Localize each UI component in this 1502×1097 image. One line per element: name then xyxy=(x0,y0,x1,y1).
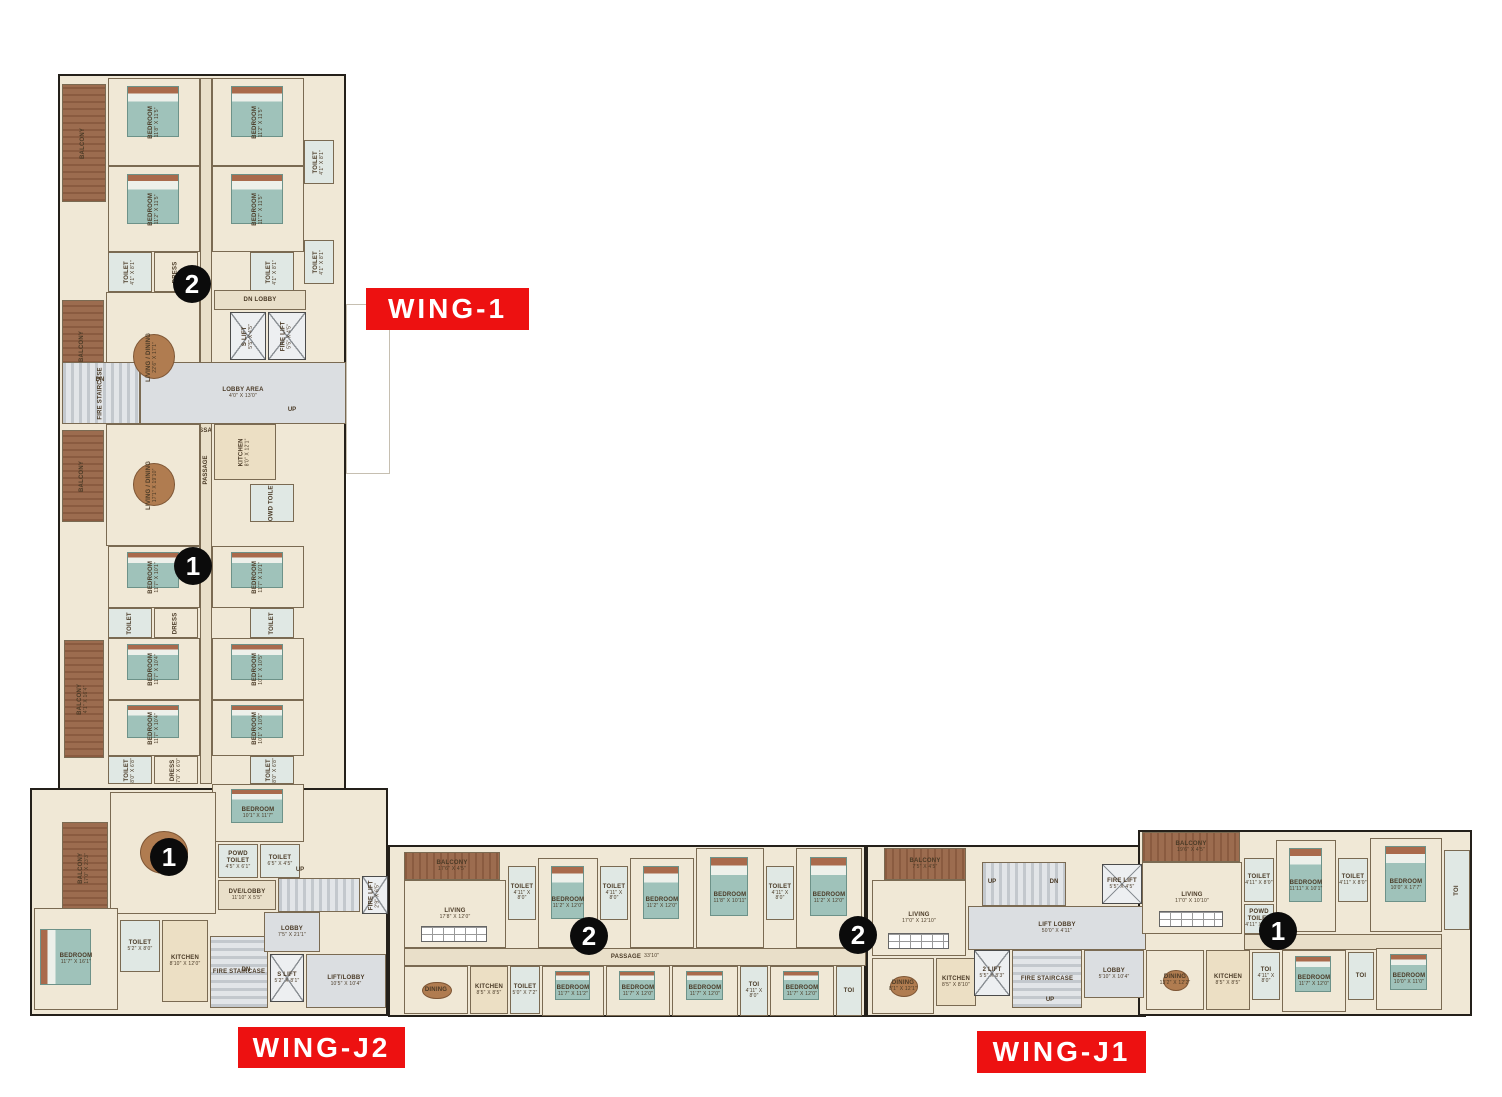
room-bedroom: BEDROOM11'7" X 11'2" xyxy=(542,966,604,1016)
room-label: TOI4'11" X 8'0" xyxy=(1253,967,1279,985)
unit-marker-2: 2 xyxy=(839,916,877,954)
room-label: BALCONY7'5" X 4'5" xyxy=(909,858,940,871)
room-label: KITCHEN8'5" X 8'5" xyxy=(1214,974,1242,987)
room-label: POWD TOILET4'5" X 6'1" xyxy=(219,851,257,871)
room-passage: PASSAGE xyxy=(200,78,212,784)
room-label: DVE/LOBBY11'10" X 5'5" xyxy=(229,889,266,902)
room-label: BEDROOM11'8" X 10'11" xyxy=(713,892,746,905)
room-powd-toilet: POWD TOILET4'5" X 6'1" xyxy=(218,844,258,878)
room-toilet: TOILET5'2" X 8'0" xyxy=(120,920,160,972)
room-label: FIRE LIFT2'9" X 6'5" xyxy=(369,880,382,910)
room-bedroom: BEDROOM11'7" X 11'5" xyxy=(212,166,304,252)
room-label: TOILET5'0" X 7'2" xyxy=(513,984,538,997)
room-toilet: TOILET4'1" X 8'1" xyxy=(304,240,334,284)
room-kitchen: KITCHEN8'5" X 8'10" xyxy=(936,958,976,1006)
room-label: LIVING17'0" X 12'10" xyxy=(902,912,936,925)
room-label: BEDROOM10'1" X 10'5" xyxy=(252,712,265,745)
room-label: TOILET8'0" X 6'8" xyxy=(266,758,279,783)
room-bedroom: BEDROOM10'1" X 10'5" xyxy=(212,638,304,700)
room-fire-lift: FIRE LIFT5'5" X 4'5" xyxy=(1102,864,1142,904)
wing-label-wing-j1: WING-J1 xyxy=(977,1031,1146,1073)
annotation-text: UP xyxy=(988,879,996,885)
room-toilet: TOILET4'11" X 8'0" xyxy=(766,866,794,920)
floor-plan-canvas: WING-1 WING-J2 WING-J1 PASSAGEBALCONYBED… xyxy=(0,0,1502,1097)
bed-icon xyxy=(810,857,847,916)
room-label: TOILET6'5" X 4'5" xyxy=(268,855,293,868)
annotation-text: PASSAGE xyxy=(203,456,209,485)
room-bedroom: BEDROOM10'1" X 11'7" xyxy=(212,784,304,842)
room-living: LIVING17'0" X 10'10" xyxy=(1142,862,1242,934)
room-dve-lobby: DVE/LOBBY11'10" X 5'5" xyxy=(218,880,276,910)
room-label: BALCONY19'6" X 4'5" xyxy=(1175,841,1206,854)
room-label: LIVING / DINING17'1" X 19'10" xyxy=(147,460,160,509)
room-label: 2 LIFT5'5" X 8'3" xyxy=(980,967,1005,980)
room-label: BEDROOM11'7" X 12'0" xyxy=(689,985,722,998)
room-bedroom: BEDROOM11'2" X 12'0" xyxy=(630,858,694,948)
room-dining: DINING13'2" X 12'2" xyxy=(1146,950,1204,1010)
room-label: FIRE LIFT5'5" X 4'5" xyxy=(1107,878,1137,891)
room-toi: TOI xyxy=(836,966,862,1016)
room-toi: TOI xyxy=(1444,850,1470,930)
room-bedroom: BEDROOM11'7" X 12'0" xyxy=(672,966,738,1016)
room-passage: PASSAGE33'10" xyxy=(404,948,866,966)
room-bedroom: BEDROOM11'8" X 11'5" xyxy=(108,78,200,166)
room-label: PASSAGE33'10" xyxy=(611,954,659,961)
room-label: TOILET4'11" X 8'0" xyxy=(1339,874,1367,887)
unit-marker-1: 1 xyxy=(1259,912,1297,950)
room-bedroom: BEDROOM10'1" X 10'5" xyxy=(212,700,304,756)
room-dining: DINING8'1" X 12'1" xyxy=(872,958,934,1014)
room-toi: TOI4'11" X 8'0" xyxy=(1252,952,1280,1000)
room-label: TOILET5'2" X 8'0" xyxy=(128,940,153,953)
room-label: BEDROOM11'7" X 12'0" xyxy=(622,985,655,998)
room-label: LOBBY5'10" X 10'4" xyxy=(1099,968,1130,981)
room-powd-toilet: POWD TOILET xyxy=(250,484,294,522)
room-balcony: BALCONY17'6" X 4'5" xyxy=(404,852,500,880)
room-label: BEDROOM11'7" X 10'1" xyxy=(252,561,265,594)
room-label: TOILET4'1" X 8'1" xyxy=(124,260,137,285)
room-label: TOILET4'11" X 8'0" xyxy=(509,884,535,902)
room-balcony: BALCONY xyxy=(62,430,104,522)
room-label: BEDROOM11'2" X 11'5" xyxy=(148,193,161,226)
wing-label-wing-j2: WING-J2 xyxy=(238,1027,405,1068)
unit-marker-1: 1 xyxy=(150,838,188,876)
unit-number-table xyxy=(421,926,487,942)
room-label: LIVING17'0" X 10'10" xyxy=(1175,892,1209,905)
room-kitchen: KITCHEN8'0" X 12'1" xyxy=(214,424,276,480)
room-label: BALCONY xyxy=(80,460,87,491)
room-label: DRESS7'0" X 6'0" xyxy=(170,758,183,783)
room-label: BEDROOM11'7" X 11'5" xyxy=(252,193,265,226)
room-label: BALCONY17'6" X 4'5" xyxy=(436,860,467,873)
room-label: FIRE STAIRCASE xyxy=(1021,976,1073,983)
room-room xyxy=(278,878,360,912)
room-bedroom: BEDROOM11'7" X 10'4" xyxy=(108,638,200,700)
room-kitchen: KITCHEN8'10" X 12'0" xyxy=(162,920,208,1002)
room-label: DN LOBBY xyxy=(244,297,277,304)
annotation-text: DN xyxy=(96,377,105,383)
room-label: BEDROOM11'2" X 12'0" xyxy=(552,897,585,910)
room-balcony: BALCONY19'6" X 4'5" xyxy=(1142,832,1240,862)
room-bedroom: BEDROOM10'0" X 11'0" xyxy=(1376,948,1442,1010)
room-label: LIVING17'8" X 12'0" xyxy=(440,908,471,921)
room-label: LIVING / DINING22'6" X 17'1" xyxy=(147,332,160,381)
room-dn-lobby: DN LOBBY xyxy=(214,290,306,310)
room-label: TOILET xyxy=(127,612,134,634)
room-lobby-area: LOBBY AREA4'0" X 13'0" xyxy=(140,362,346,424)
room-label: BALCONY4'1" X 16'4" xyxy=(78,683,91,714)
annotation-text: UP xyxy=(288,407,296,413)
room-fire-staircase: FIRE STAIRCASE xyxy=(62,362,140,424)
room-living: LIVING17'0" X 12'10" xyxy=(872,880,966,956)
room-bedroom: BEDROOM11'7" X 16'1" xyxy=(34,908,118,1010)
room-balcony: BALCONY4'1" X 16'4" xyxy=(64,640,104,758)
room-label: TOILET4'1" X 8'1" xyxy=(266,260,279,285)
room-dining: DINING xyxy=(404,966,468,1014)
wing-label-wing-1: WING-1 xyxy=(366,288,529,330)
room-label: BALCONY17'0" X 23'3" xyxy=(79,852,92,883)
room-label: BEDROOM11'8" X 11'5" xyxy=(148,106,161,139)
room-label: KITCHEN8'5" X 8'5" xyxy=(475,984,503,997)
room-label: KITCHEN8'5" X 8'10" xyxy=(942,976,970,989)
bed-icon xyxy=(1385,846,1426,901)
room-label: BEDROOM10'0" X 11'0" xyxy=(1393,973,1426,986)
room-living-dining: LIVING / DINING17'1" X 19'10" xyxy=(106,424,200,546)
room-toilet: TOILET8'0" X 6'8" xyxy=(250,756,294,784)
room-bedroom: BEDROOM11'8" X 10'11" xyxy=(696,848,764,948)
room-label: DINING8'1" X 12'1" xyxy=(889,980,917,993)
room-label: BEDROOM10'1" X 10'5" xyxy=(252,653,265,686)
room-balcony: BALCONY xyxy=(62,84,106,202)
room-label: FIRE STAIRCASE xyxy=(213,969,265,976)
room-s-lift: S LIFT5'2" X 8'1" xyxy=(270,954,304,1002)
annotation-text: UP xyxy=(1046,997,1054,1003)
room-label: FIRE STAIRCASE xyxy=(98,367,105,419)
room-label: BEDROOM11'2" X 12'0" xyxy=(646,897,679,910)
room-toi: TOI xyxy=(1348,952,1374,1000)
room-label: TOILET8'0" X 6'8" xyxy=(124,758,137,783)
room-label: TOI4'11" X 8'0" xyxy=(741,982,767,1000)
room-kitchen: KITCHEN8'5" X 8'5" xyxy=(1206,950,1250,1010)
room-label: BEDROOM11'7" X 12'0" xyxy=(786,985,819,998)
room-label: FIRE LIFT5'5" X 4'5" xyxy=(281,321,294,351)
room-fire-staircase: FIRE STAIRCASE xyxy=(210,936,268,1008)
room-toilet: TOILET5'0" X 7'2" xyxy=(510,966,540,1014)
room-label: TOILET4'1" X 8'1" xyxy=(313,250,326,275)
annotation-text: DN xyxy=(242,967,251,973)
room-label: DRESS xyxy=(173,612,180,634)
room-toilet: TOILET xyxy=(108,608,152,638)
room-toilet: TOILET4'11" X 8'0" xyxy=(1244,858,1274,902)
room-label: TOI xyxy=(1356,973,1367,980)
room-toilet: TOILET4'11" X 8'0" xyxy=(508,866,536,920)
room-label: BEDROOM11'7" X 12'0" xyxy=(1298,975,1331,988)
room-label: BEDROOM11'7" X 10'4" xyxy=(148,712,161,745)
room-label: BEDROOM11'2" X 11'5" xyxy=(252,106,265,139)
room-label: DINING13'2" X 12'2" xyxy=(1160,974,1191,987)
room-balcony: BALCONY17'0" X 23'3" xyxy=(62,822,108,914)
room-label: BEDROOM11'7" X 10'4" xyxy=(148,653,161,686)
room-toilet: TOILET4'11" X 8'0" xyxy=(1338,858,1368,902)
room-label: TOILET4'11" X 8'0" xyxy=(1245,874,1273,887)
room-lobby: LOBBY7'5" X 21'1" xyxy=(264,912,320,952)
room-label: LIFT/LOBBY10'5" X 10'4" xyxy=(327,975,364,988)
room-bedroom: BEDROOM11'7" X 12'0" xyxy=(1282,950,1346,1012)
room-lobby: LOBBY5'10" X 10'4" xyxy=(1084,950,1144,998)
room-label: TOILET4'11" X 8'0" xyxy=(767,884,793,902)
room-bedroom: BEDROOM11'2" X 11'5" xyxy=(108,166,200,252)
room-label: TOILET xyxy=(269,612,276,634)
unit-number-table xyxy=(888,933,949,949)
room-bedroom: BEDROOM11'7" X 12'0" xyxy=(770,966,834,1016)
annotation-text: DN xyxy=(1050,879,1059,885)
room-label: TOILET4'1" X 8'1" xyxy=(313,150,326,175)
room-toi: TOI4'11" X 8'0" xyxy=(740,966,768,1016)
room-toilet: TOILET xyxy=(250,608,294,638)
room-dress: DRESS7'0" X 6'0" xyxy=(154,756,198,784)
room-label: POWD TOILET xyxy=(269,484,276,522)
room-label: BEDROOM10'0" X 17'7" xyxy=(1390,879,1423,892)
room-s-lift: S LIFT5'5" X 4'5" xyxy=(230,312,266,360)
room-bedroom: BEDROOM11'7" X 12'0" xyxy=(606,966,670,1016)
unit-marker-2: 2 xyxy=(173,265,211,303)
room-label: S LIFT5'5" X 4'5" xyxy=(242,324,255,349)
unit-marker-1: 1 xyxy=(174,547,212,585)
bed-icon xyxy=(643,866,679,919)
room-label: BEDROOM11'7" X 16'1" xyxy=(60,953,93,966)
room-label: BEDROOM11'7" X 11'2" xyxy=(557,985,590,998)
room-label: LOBBY AREA4'0" X 13'0" xyxy=(222,387,263,400)
room-label: S LIFT5'2" X 8'1" xyxy=(275,972,300,985)
room-label: DINING xyxy=(425,987,447,994)
room-label: KITCHEN8'0" X 12'1" xyxy=(239,438,252,466)
room-bedroom: BEDROOM10'0" X 17'7" xyxy=(1370,838,1442,932)
room-kitchen: KITCHEN8'5" X 8'5" xyxy=(470,966,508,1014)
room-label: LOBBY7'5" X 21'1" xyxy=(278,926,306,939)
annotation-text: UP xyxy=(296,867,304,873)
room-bedroom: BEDROOM11'7" X 10'1" xyxy=(212,546,304,608)
room-label: BEDROOM11'2" X 12'0" xyxy=(813,892,846,905)
room-toilet: TOILET4'1" X 8'1" xyxy=(108,252,152,292)
room-label: TOI xyxy=(844,988,855,995)
room-label: TOI xyxy=(1454,885,1461,896)
unit-number-table xyxy=(1159,911,1224,927)
room-label: BALCONY xyxy=(81,127,88,158)
unit-marker-2: 2 xyxy=(570,917,608,955)
room-living: LIVING17'8" X 12'0" xyxy=(404,880,506,948)
room-2-lift: 2 LIFT5'5" X 8'3" xyxy=(974,950,1010,996)
room-toilet: TOILET4'1" X 8'1" xyxy=(304,140,334,184)
room-toilet: TOILET4'1" X 8'1" xyxy=(250,252,294,292)
room-label: BEDROOM11'7" X 10'1" xyxy=(148,561,161,594)
room-label: BEDROOM11'11" X 10'1" xyxy=(1289,880,1322,893)
room-toilet: TOILET4'11" X 8'0" xyxy=(600,866,628,920)
room-label: PASSAGE xyxy=(200,428,212,435)
room-label: LIFT LOBBY50'0" X 4'11" xyxy=(1038,922,1075,935)
room-toilet: TOILET6'5" X 4'5" xyxy=(260,844,300,878)
room-label: TOILET4'11" X 8'0" xyxy=(601,884,627,902)
room-lift-lobby: LIFT LOBBY50'0" X 4'11" xyxy=(968,906,1146,950)
bed-icon xyxy=(1289,848,1323,902)
room-bedroom: BEDROOM11'2" X 11'5" xyxy=(212,78,304,166)
room-balcony: BALCONY7'5" X 4'5" xyxy=(884,848,966,880)
room-fire-lift: FIRE LIFT5'5" X 4'5" xyxy=(268,312,306,360)
bed-icon xyxy=(551,866,585,919)
room-dress: DRESS xyxy=(154,608,198,638)
room-lift-lobby: LIFT/LOBBY10'5" X 10'4" xyxy=(306,954,386,1008)
room-toilet: TOILET8'0" X 6'8" xyxy=(108,756,152,784)
room-label: BEDROOM10'1" X 11'7" xyxy=(242,807,275,820)
room-bedroom: BEDROOM11'7" X 10'4" xyxy=(108,700,200,756)
bed-icon xyxy=(710,857,748,916)
room-fire-lift: FIRE LIFT2'9" X 6'5" xyxy=(362,876,388,914)
room-label: BALCONY xyxy=(80,330,87,361)
room-label: KITCHEN8'10" X 12'0" xyxy=(170,955,201,968)
